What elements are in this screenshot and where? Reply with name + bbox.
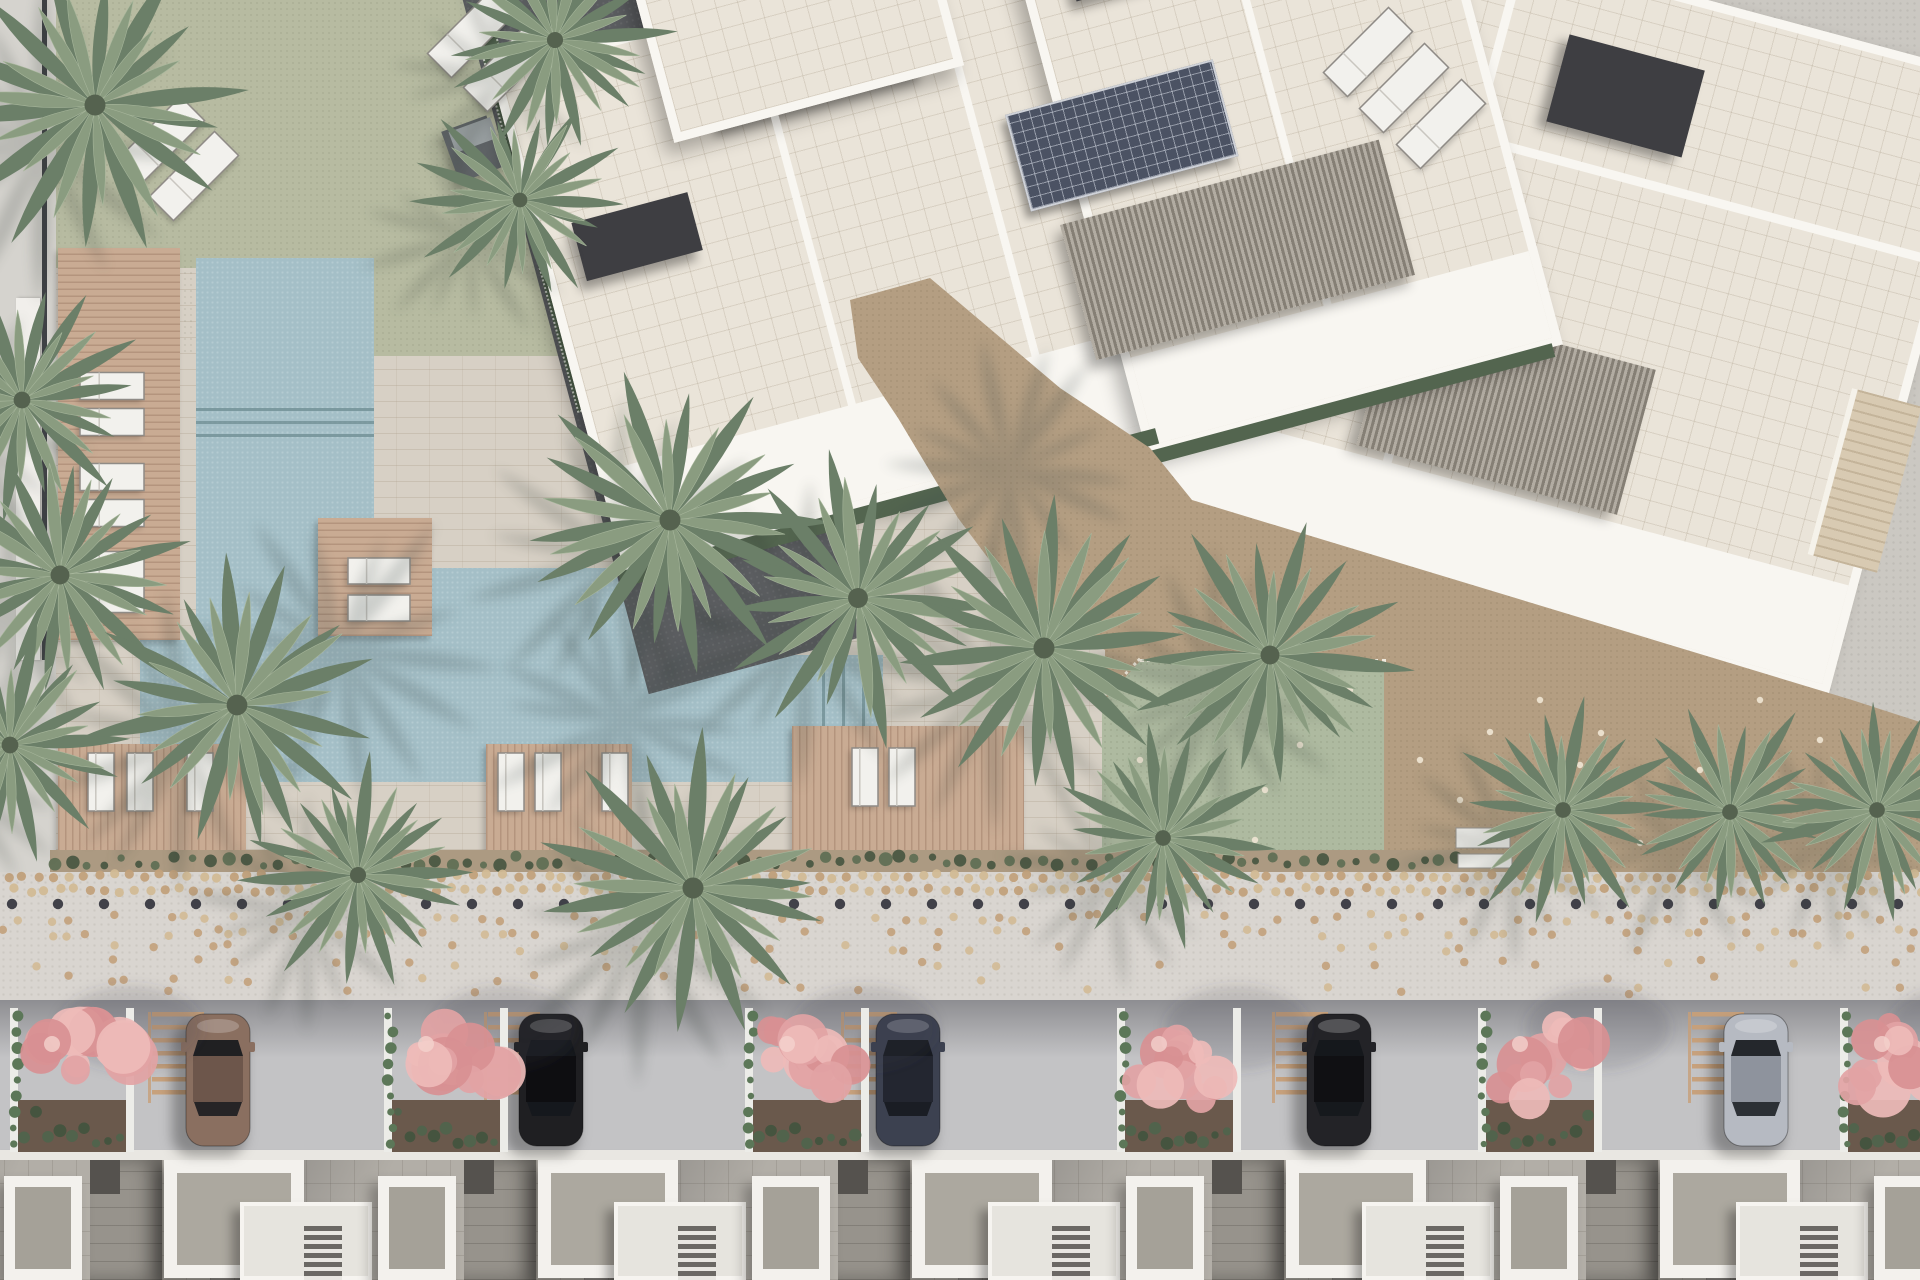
parking-planters bbox=[9, 986, 1920, 1152]
palm-shadow bbox=[980, 761, 1242, 1007]
site-plan-render bbox=[0, 0, 1920, 1280]
palm-trees bbox=[0, 0, 1920, 1105]
loungers bbox=[77, 0, 1512, 868]
scene-objects-layer bbox=[0, 0, 1920, 1280]
flowering-tree-planter bbox=[1476, 986, 1670, 1152]
flowering-tree-planter bbox=[1838, 986, 1920, 1152]
silver-car bbox=[1710, 1014, 1793, 1156]
flowering-tree-planter bbox=[1114, 986, 1309, 1152]
sun-lounger bbox=[849, 748, 878, 809]
